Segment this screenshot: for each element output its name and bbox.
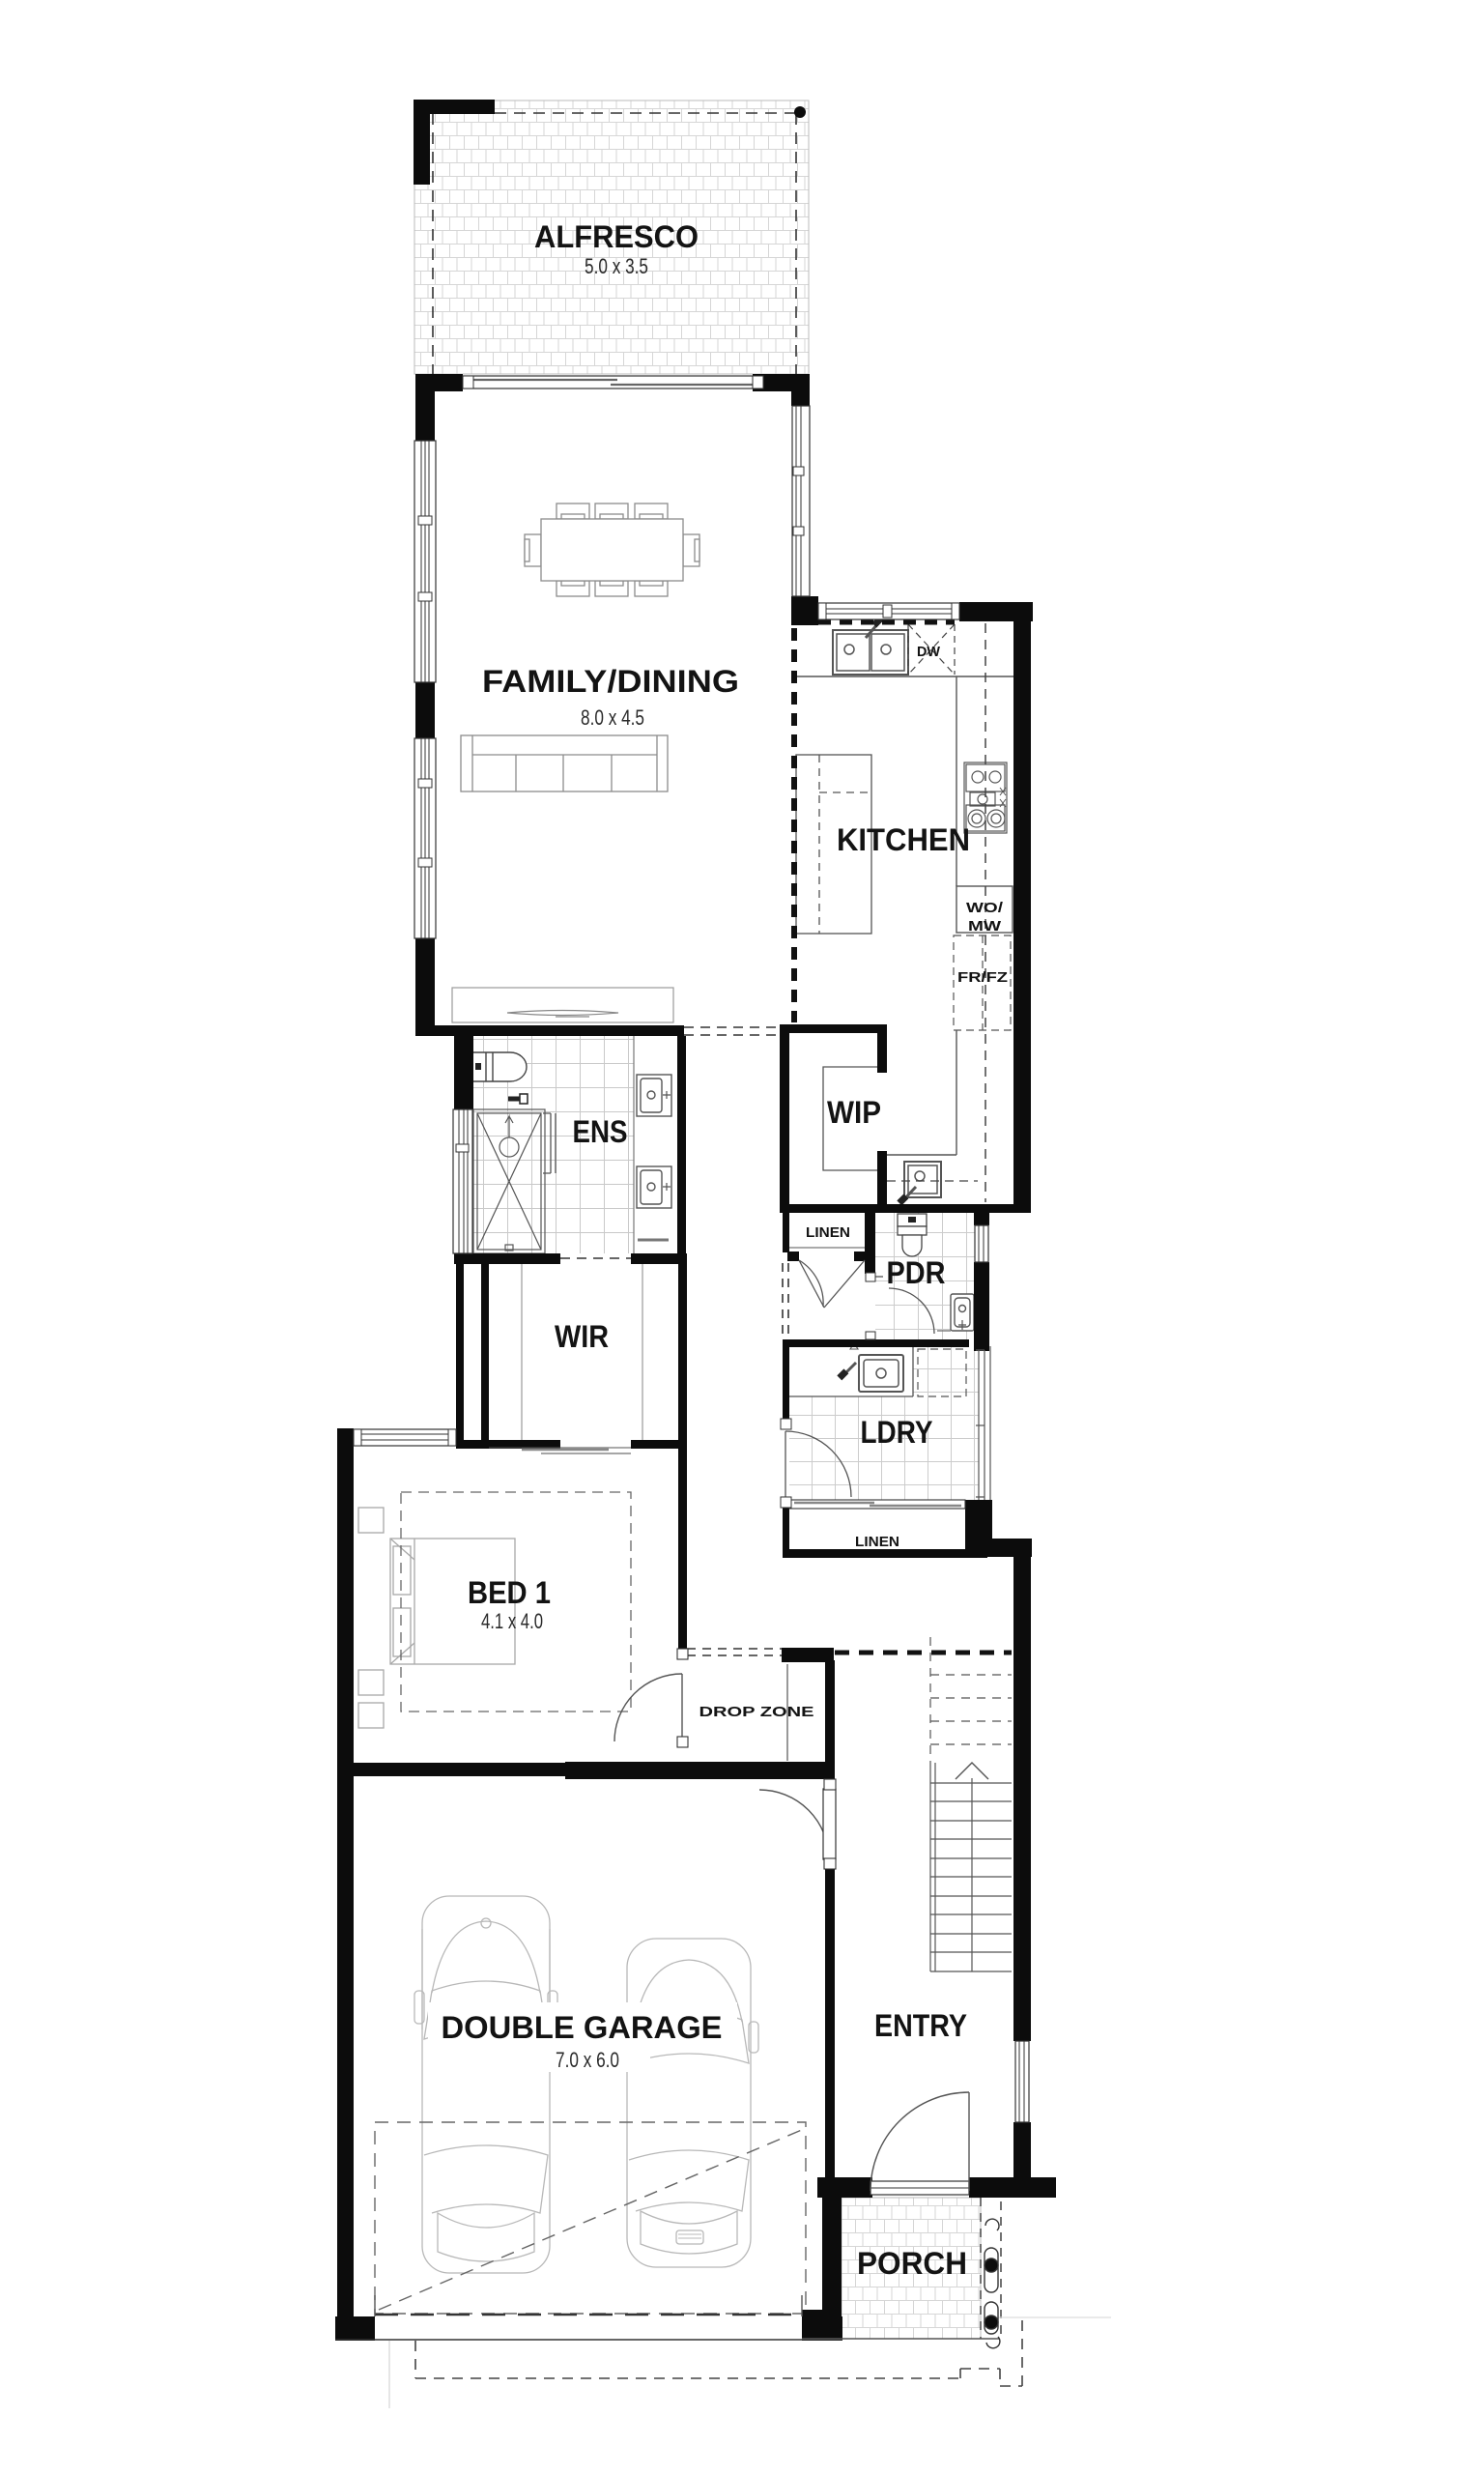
svg-text:WO/: WO/	[966, 900, 1004, 916]
svg-text:BED 1: BED 1	[468, 1575, 551, 1610]
svg-text:DOUBLE GARAGE: DOUBLE GARAGE	[442, 2010, 723, 2045]
svg-text:LINEN: LINEN	[806, 1224, 850, 1241]
svg-text:PORCH: PORCH	[857, 2246, 967, 2281]
svg-text:WIR: WIR	[555, 1319, 609, 1354]
svg-text:LINEN: LINEN	[855, 1534, 899, 1550]
svg-text:DW: DW	[917, 644, 941, 660]
svg-text:KITCHEN: KITCHEN	[837, 822, 970, 857]
svg-text:WIP: WIP	[827, 1095, 881, 1130]
svg-text:PDR: PDR	[887, 1255, 946, 1290]
svg-text:4.1 x 4.0: 4.1 x 4.0	[481, 1609, 543, 1633]
svg-text:ALFRESCO: ALFRESCO	[534, 219, 699, 254]
svg-text:FR/FZ: FR/FZ	[957, 969, 1008, 986]
svg-text:ENS: ENS	[573, 1114, 628, 1149]
svg-text:LDRY: LDRY	[861, 1415, 933, 1450]
svg-text:ENTRY: ENTRY	[874, 2008, 967, 2043]
svg-text:7.0 x 6.0: 7.0 x 6.0	[556, 2048, 619, 2072]
svg-text:5.0 x 3.5: 5.0 x 3.5	[585, 254, 648, 278]
svg-text:MW: MW	[968, 918, 1002, 935]
svg-text:8.0 x 4.5: 8.0 x 4.5	[581, 705, 644, 730]
svg-text:DROP ZONE: DROP ZONE	[699, 1704, 814, 1720]
svg-text:FAMILY/DINING: FAMILY/DINING	[482, 664, 739, 699]
